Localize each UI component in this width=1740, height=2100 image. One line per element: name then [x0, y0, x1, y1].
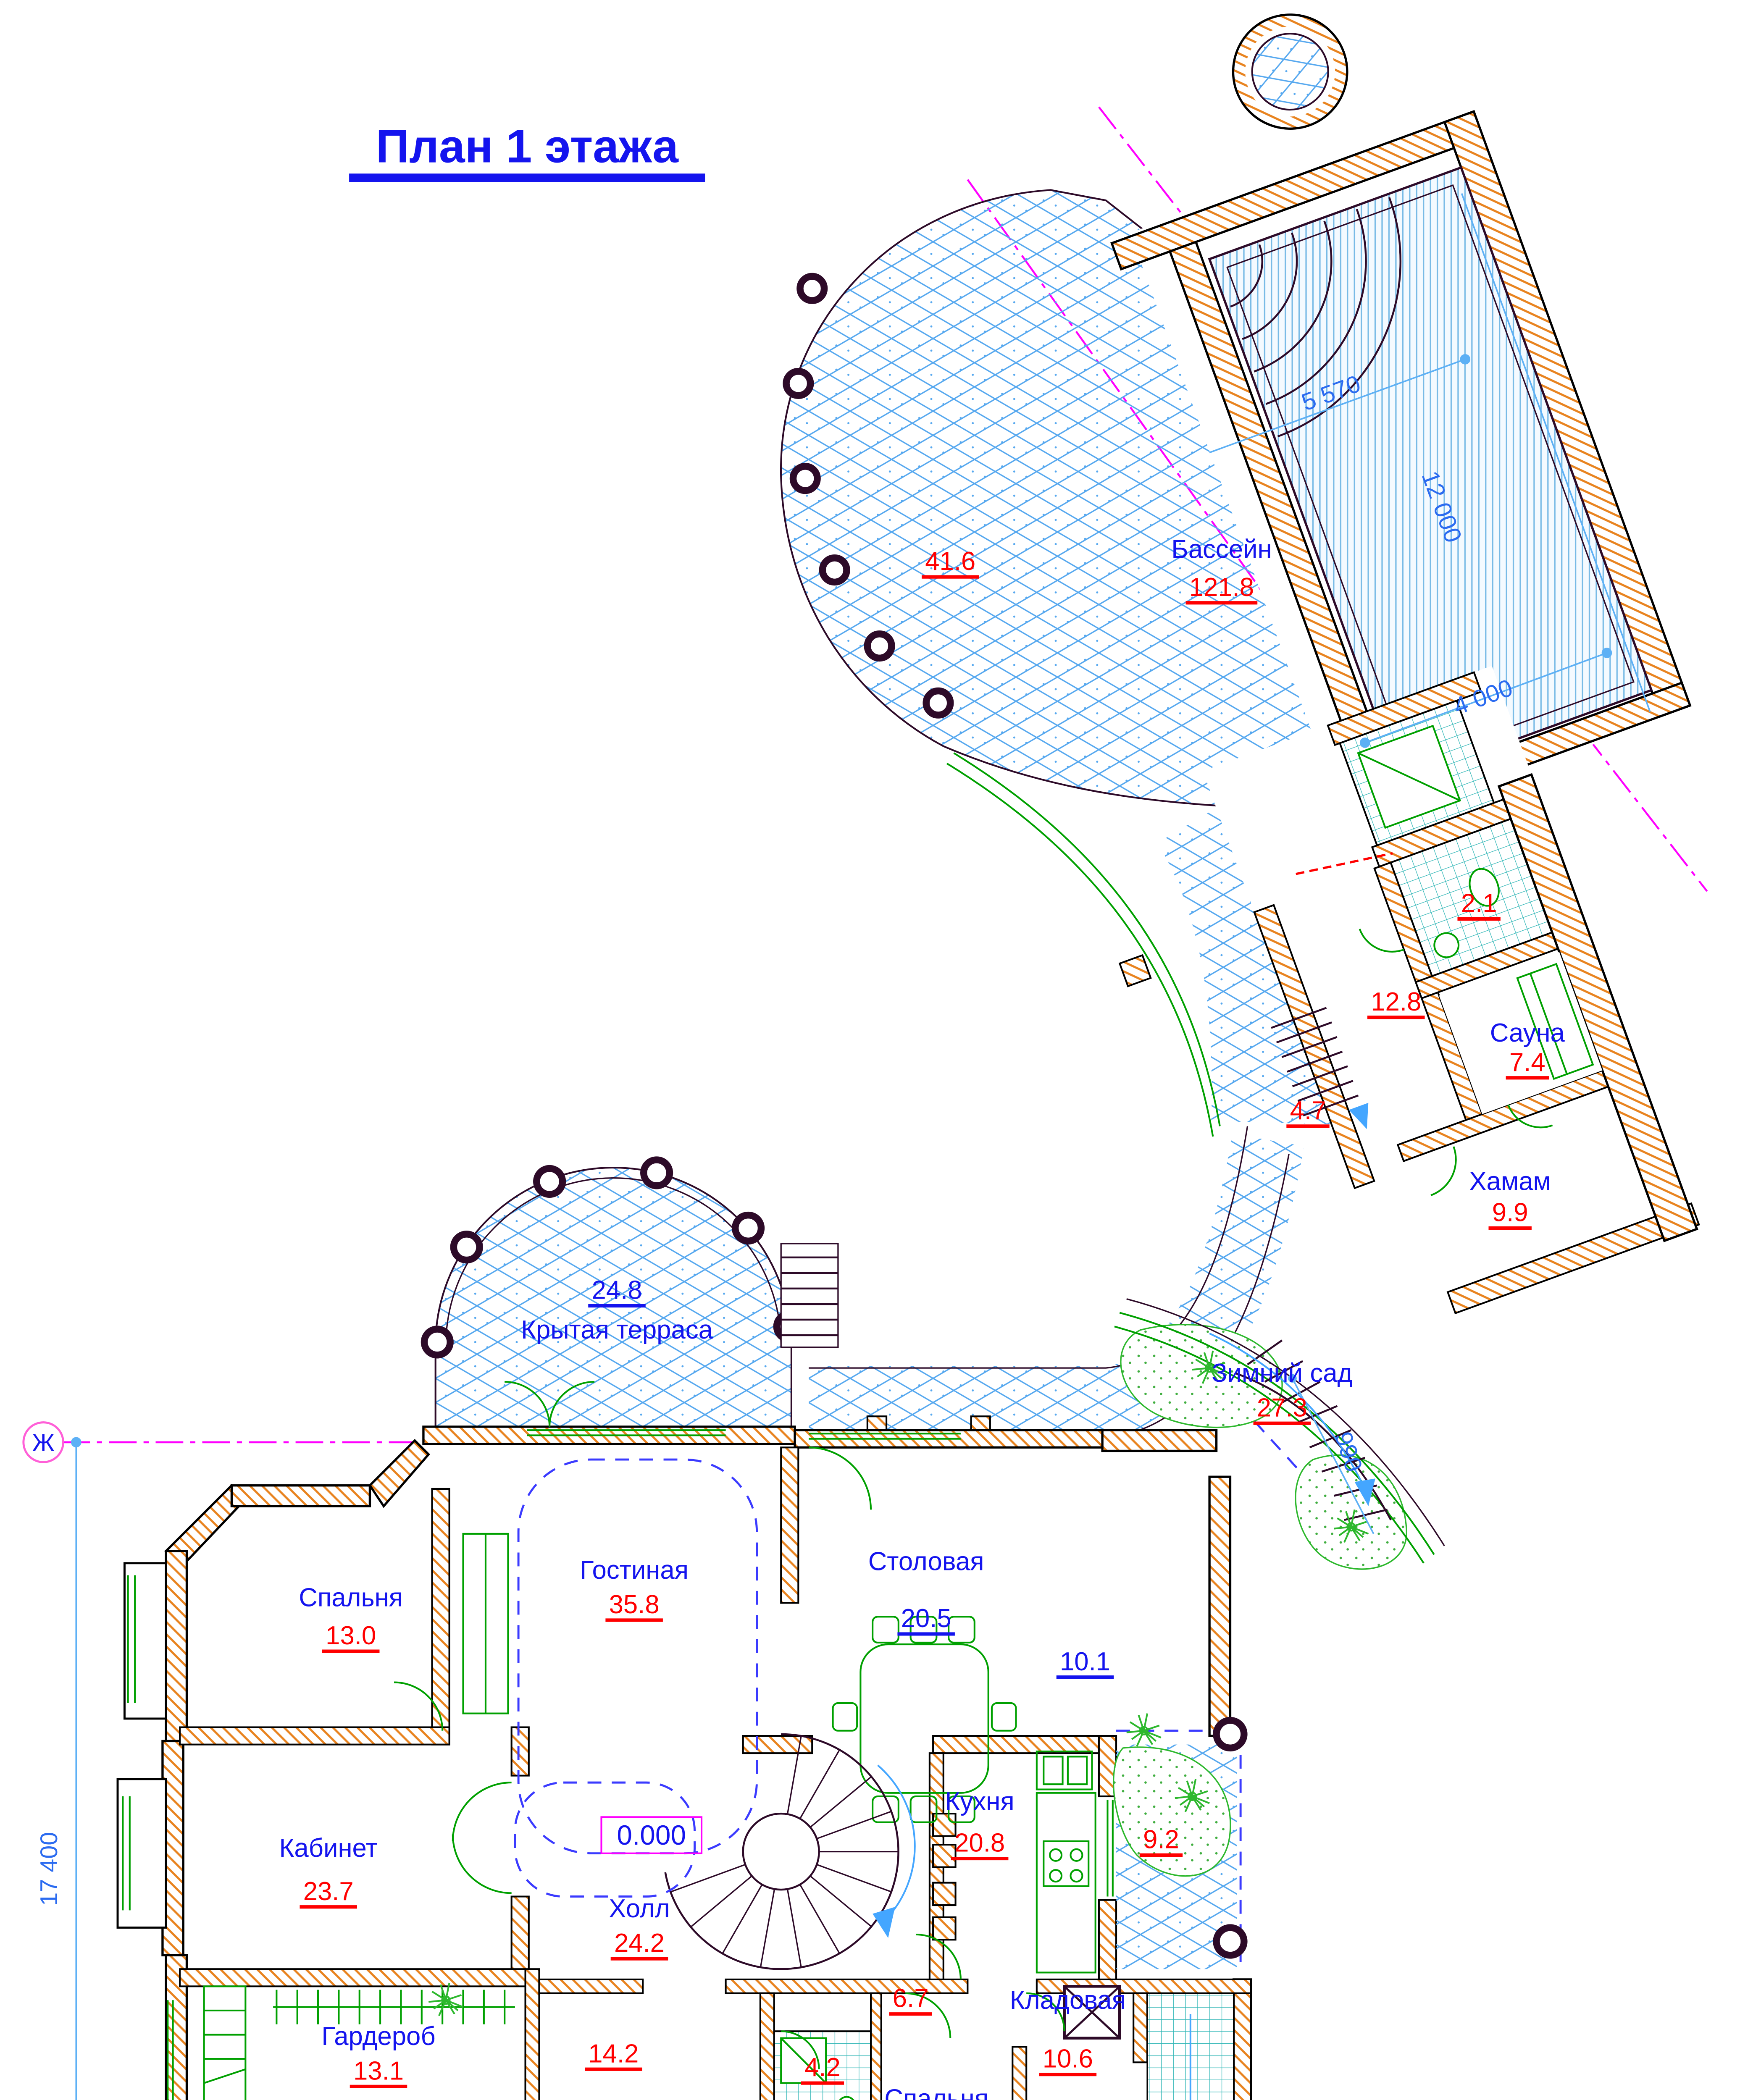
room-label-холл: Холл — [609, 1894, 670, 1923]
floor-plan: План 1 этажа Бассейн121.841.62.112.8Саун… — [0, 0, 1740, 2100]
room-label-зимний-сад: 27.3 — [1257, 1393, 1307, 1422]
axis-label-Ж: Ж — [32, 1430, 55, 1457]
room-label-спальня: 13.0 — [326, 1621, 376, 1650]
room-label-холл: 24.2 — [614, 1929, 665, 1958]
room-label-сауна: Сауна — [1490, 1018, 1565, 1047]
room-label-кабинет: Кабинет — [279, 1834, 378, 1863]
room-label-кухня: Кухня — [945, 1787, 1015, 1816]
room-label-столовая: 20.5 — [901, 1604, 951, 1633]
room-label-14-2: 14.2 — [588, 2039, 639, 2068]
room-label-бассейн: 121.8 — [1189, 573, 1254, 602]
dimension-label: 17 400 — [36, 1832, 63, 1906]
room-label-столовая: Столовая — [868, 1547, 984, 1576]
room-label-10-1: 10.1 — [1060, 1647, 1110, 1676]
room-label-4-7: 4.7 — [1290, 1096, 1326, 1125]
room-label-спальня: Спальня — [299, 1583, 403, 1612]
room-label-4-2: 4.2 — [804, 2053, 841, 2082]
room-label-41-6: 41.6 — [925, 547, 975, 576]
side-stair — [1147, 1993, 1234, 2100]
room-label-бассейн: Бассейн — [1171, 535, 1272, 564]
room-label-крытая-терраса: Крытая терраса — [521, 1315, 713, 1344]
room-label-кухня: 20.8 — [954, 1829, 1005, 1858]
room-label-крытая-терраса: 24.8 — [591, 1276, 642, 1305]
room-label-гостиная: Гостиная — [580, 1556, 689, 1585]
room-label-спальня: Спальня — [884, 2084, 988, 2100]
room-label-кладовая: 10.6 — [1043, 2045, 1093, 2074]
page-title: План 1 этажа — [376, 120, 679, 173]
room-label-9-2: 9.2 — [1143, 1825, 1179, 1854]
room-label-зимний-сад: Зимний сад — [1212, 1359, 1352, 1388]
room-label-2-1: 2.1 — [1461, 889, 1497, 918]
room-label-кладовая: Кладовая — [1010, 1986, 1126, 2015]
room-label-гардероб: 13.1 — [353, 2056, 404, 2085]
level-mark: 0.000 — [617, 1819, 686, 1851]
room-label-кабинет: 23.7 — [303, 1877, 354, 1906]
room-label-хамам: 9.9 — [1492, 1198, 1528, 1227]
room-label-гостиная: 35.8 — [609, 1590, 660, 1619]
room-label-гардероб: Гардероб — [321, 2022, 435, 2051]
room-label-12-8: 12.8 — [1371, 987, 1421, 1016]
room-label-хамам: Хамам — [1469, 1167, 1551, 1196]
room-label-6-7: 6.7 — [893, 1984, 929, 2013]
room-label-сауна: 7.4 — [1509, 1048, 1545, 1077]
